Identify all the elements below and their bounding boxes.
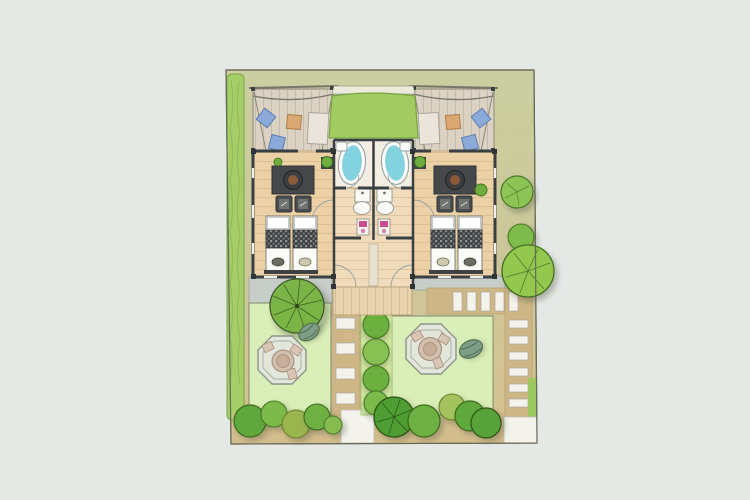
pillow bbox=[295, 218, 316, 229]
patio-octagon-left bbox=[258, 336, 306, 384]
bed-tray bbox=[464, 258, 476, 266]
terrace-left bbox=[249, 86, 338, 152]
plant bbox=[415, 157, 426, 168]
washbasin-left bbox=[355, 189, 370, 202]
patio-octagon-right bbox=[406, 324, 456, 374]
toilet-left bbox=[354, 202, 371, 215]
shrub bbox=[363, 366, 389, 392]
pillow bbox=[433, 218, 454, 229]
lounge-cushion bbox=[269, 135, 286, 152]
terrace-right bbox=[409, 86, 498, 152]
bush bbox=[471, 408, 501, 438]
foot-bench bbox=[429, 270, 483, 274]
toilet-right bbox=[377, 202, 394, 215]
terrace-table bbox=[445, 114, 460, 129]
hall-divider bbox=[369, 244, 378, 286]
plant bbox=[322, 157, 333, 168]
bed-throw bbox=[293, 230, 317, 248]
bath-sink-right bbox=[400, 142, 411, 151]
pillow bbox=[460, 218, 481, 229]
washbasin-right bbox=[377, 189, 392, 202]
plant bbox=[274, 158, 282, 166]
site-plan-illustration bbox=[0, 0, 750, 500]
lounge-cushion bbox=[462, 135, 479, 152]
hedge-right-sliver bbox=[528, 378, 536, 418]
bed-throw bbox=[266, 230, 290, 248]
shrub bbox=[363, 312, 389, 338]
bush bbox=[408, 405, 440, 437]
bed-throw bbox=[458, 230, 482, 248]
floor-plan-canvas bbox=[0, 0, 750, 500]
walkway-bottom-right bbox=[504, 417, 537, 443]
bed-tray bbox=[272, 258, 284, 266]
bed-throw bbox=[431, 230, 455, 248]
stepping-path-center bbox=[331, 310, 360, 415]
bed-tray bbox=[299, 258, 311, 266]
terrace-table bbox=[286, 114, 301, 129]
plant bbox=[475, 184, 487, 196]
door-mat bbox=[307, 112, 329, 144]
pillow bbox=[268, 218, 289, 229]
bath-sink-left bbox=[336, 142, 347, 151]
shrub bbox=[363, 339, 389, 365]
door-mat bbox=[418, 112, 440, 144]
foot-bench bbox=[264, 270, 318, 274]
bed-tray bbox=[437, 258, 449, 266]
bush bbox=[324, 416, 342, 434]
entrance-canopy bbox=[329, 86, 418, 138]
